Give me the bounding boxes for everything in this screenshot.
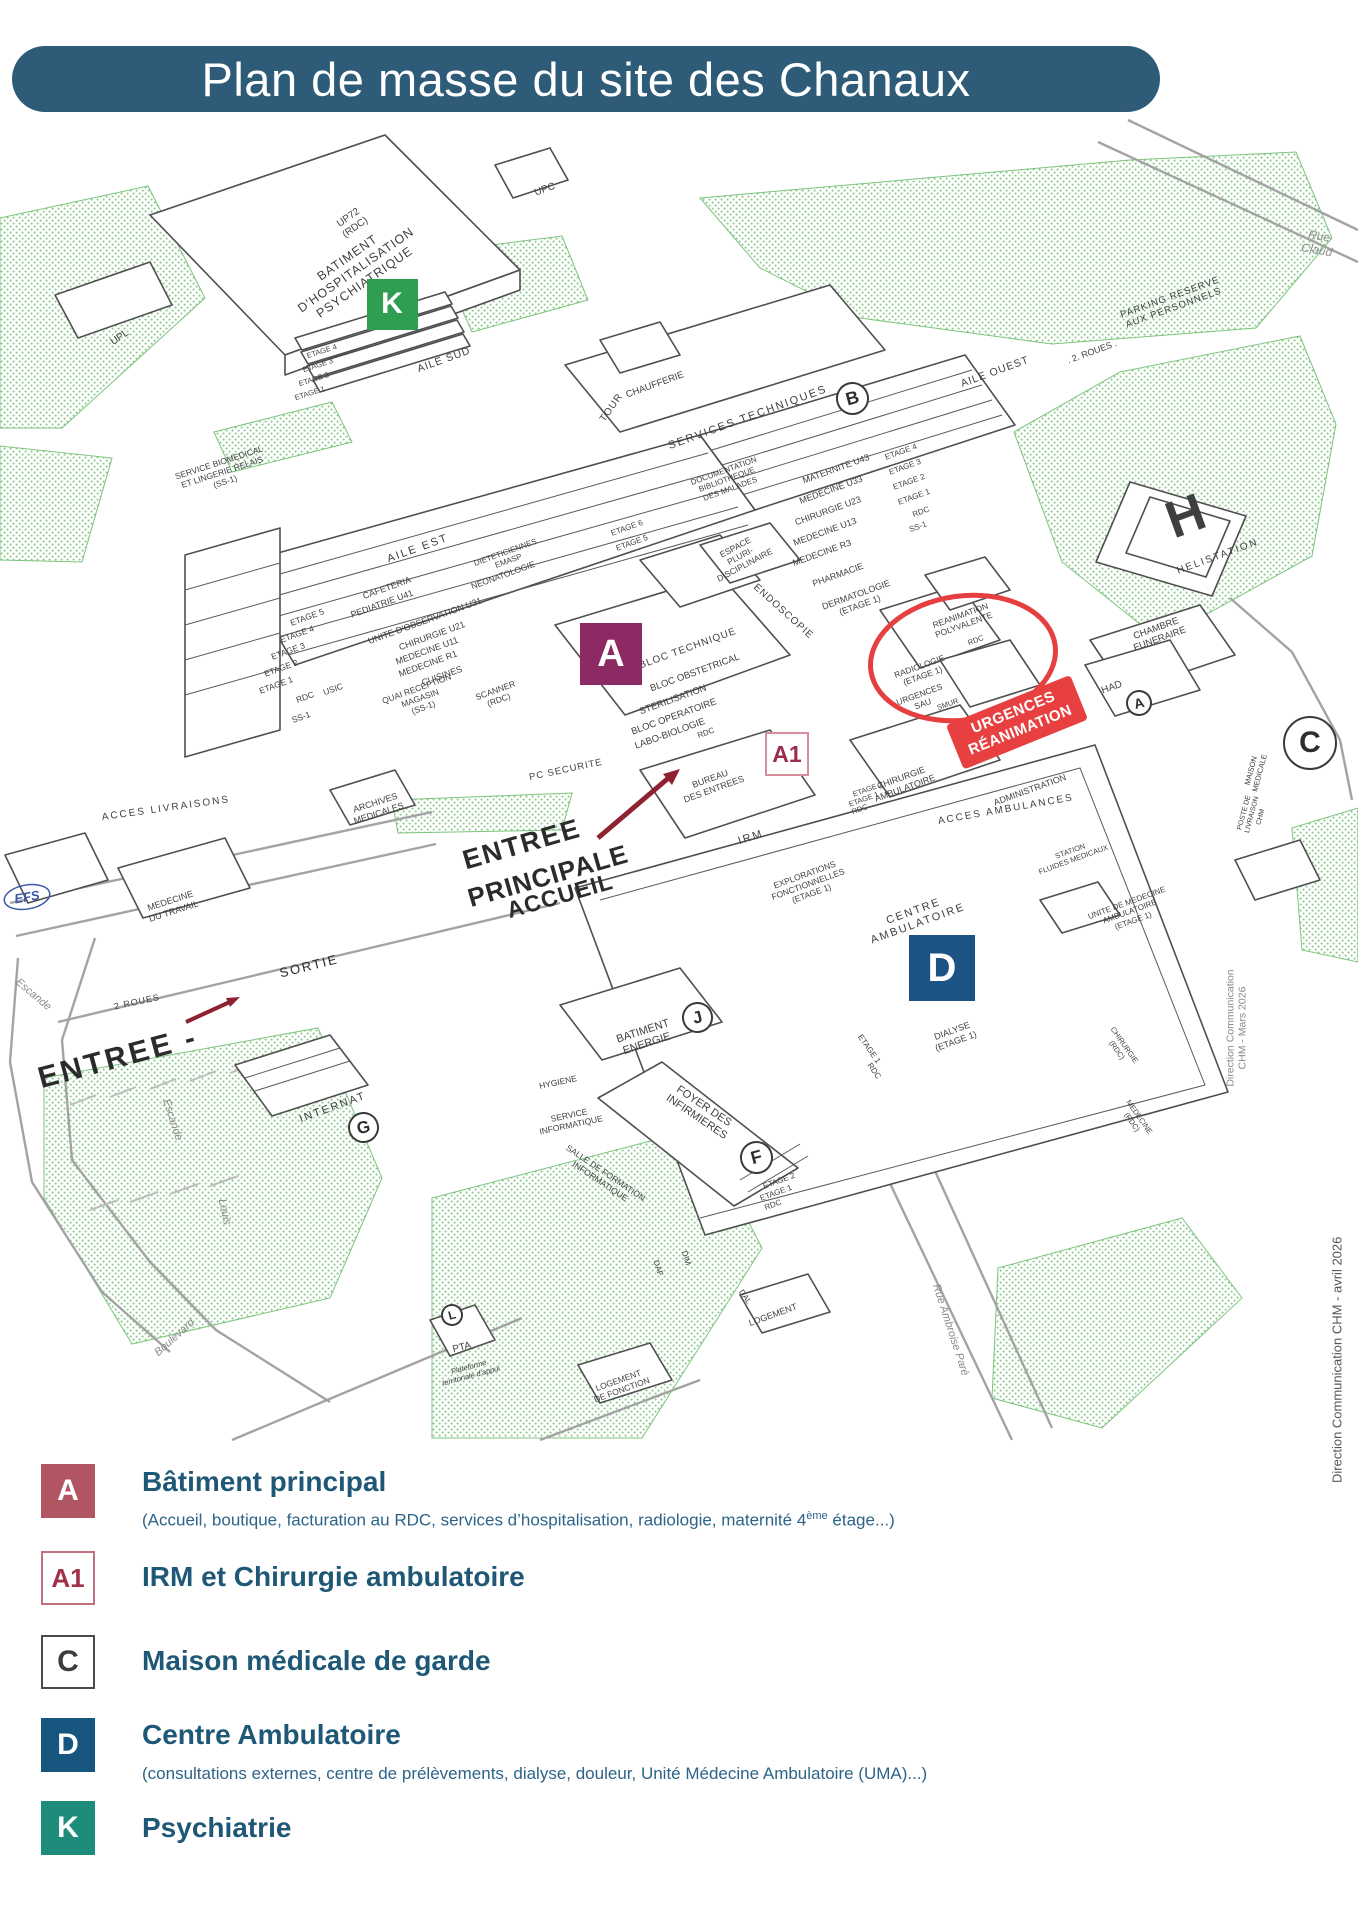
legend-title-a1: IRM et Chirurgie ambulatoire (142, 1561, 525, 1593)
map-marker-a1-2: A1 (765, 732, 809, 776)
map-marker-a-1: A (580, 623, 642, 685)
page-title: Plan de masse du site des Chanaux (202, 52, 971, 107)
legend-subtitle-d: (consultations externes, centre de prélè… (142, 1764, 927, 1784)
legend-title-k: Psychiatrie (142, 1812, 291, 1844)
legend-code-a1: A1 (41, 1551, 95, 1605)
legend-subtitle-a: (Accueil, boutique, facturation au RDC, … (142, 1510, 895, 1531)
legend-code-c: C (41, 1635, 95, 1689)
map-marker-k-0: K (367, 279, 418, 330)
legend-title-c: Maison médicale de garde (142, 1645, 491, 1677)
map-marker-d-3: D (909, 935, 975, 1001)
legend-title-a: Bâtiment principal (142, 1466, 386, 1498)
site-plan-drawing (0, 0, 1358, 1920)
legend-code-k: K (41, 1801, 95, 1855)
page-title-banner: Plan de masse du site des Chanaux (12, 46, 1160, 112)
legend-code-d: D (41, 1718, 95, 1772)
legend-code-a: A (41, 1464, 95, 1518)
map-marker-c-10: C (1283, 716, 1337, 770)
site-plan: UPCUP72 (RDC)UPLBATIMENT D'HOSPITALISATI… (0, 0, 1358, 1920)
page-credit: Direction Communication CHM - avril 2026 (1326, 1200, 1348, 1520)
legend-title-d: Centre Ambulatoire (142, 1719, 401, 1751)
